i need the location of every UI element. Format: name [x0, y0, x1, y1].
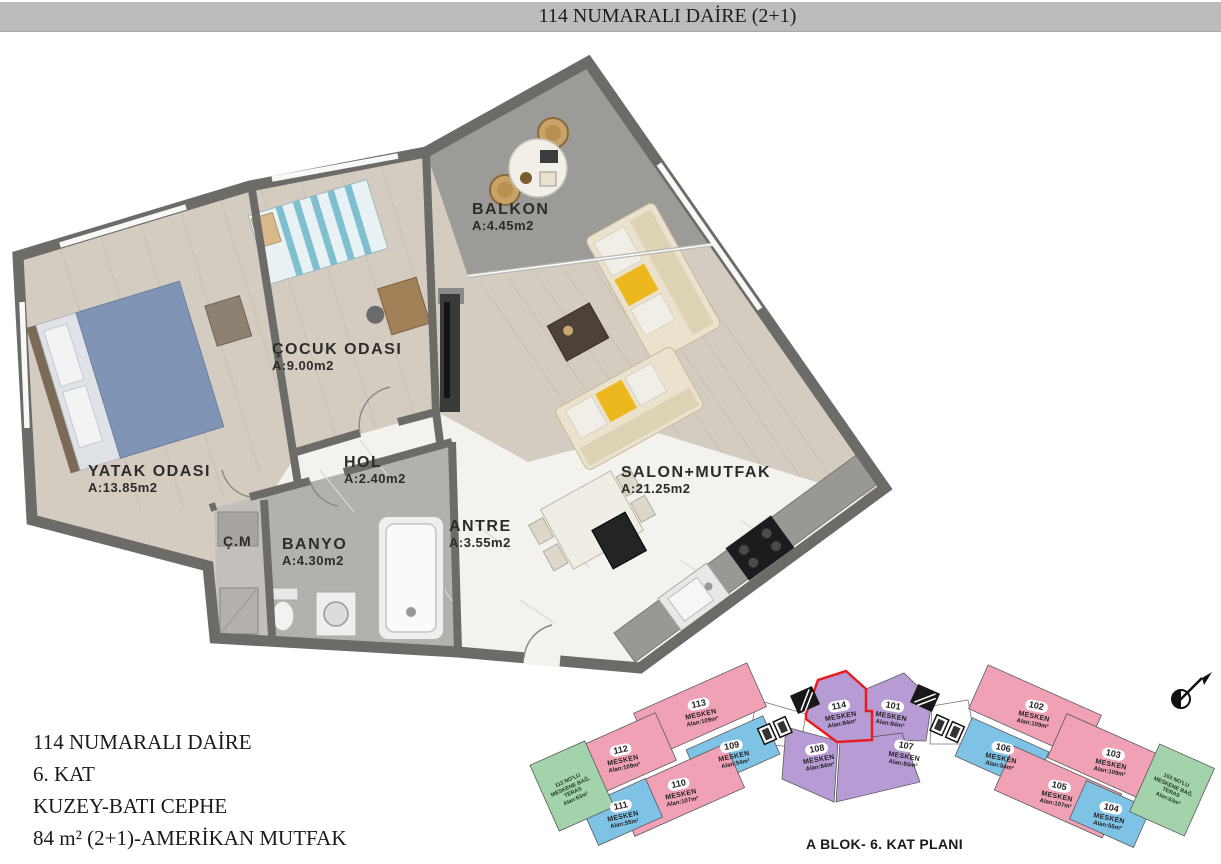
north-compass-icon [1172, 672, 1212, 708]
room-label-antre: ANTRE A:3.55m2 [449, 519, 512, 549]
entry-door-gap [524, 658, 560, 661]
keyplan-label-111: 111 MESKEN Alan:55m² [603, 793, 641, 832]
keyplan-label-103: 103 MESKEN Alan:109m² [1093, 740, 1131, 779]
keyplan-label-114: 114 MESKEN Alan:84m² [822, 693, 859, 731]
keyplan-caption: A BLOK- 6. KAT PLANI [806, 836, 963, 852]
keyplan-label-107: 107 MESKEN Alan:84m² [887, 733, 924, 771]
info-line-size: 84 m² (2+1)-AMERİKAN MUTFAK [33, 822, 346, 854]
page: 114 NUMARALI DAİRE (2+1) [0, 0, 1221, 864]
keyplan-label-101: 101 MESKEN Alan:84m² [874, 693, 911, 731]
room-label-salon-mutfak: SALON+MUTFAK A:21.25m2 [621, 465, 771, 495]
keyplan-label-105: 105 MESKEN Alan:107m² [1039, 772, 1077, 811]
balcony-table [509, 139, 567, 197]
room-label-yatak-odasi: YATAK ODASI A:13.85m2 [88, 464, 211, 494]
info-line-floor: 6. KAT [33, 758, 346, 790]
keyplan-label-104: 104 MESKEN Alan:55m² [1091, 795, 1129, 834]
washing-machine [316, 592, 356, 636]
room-label-hol: HOL A:2.40m2 [344, 455, 406, 485]
keyplan-label-109: 109 MESKEN Alan:54m² [714, 733, 752, 772]
keyplan-label-112: 112 MESKEN Alan:109m² [603, 736, 641, 775]
keyplan-label-110: 110 MESKEN Alan:107m² [661, 770, 699, 809]
info-line-facade: KUZEY-BATI CEPHE [33, 790, 346, 822]
bathtub [378, 516, 444, 640]
keyplan-label-108: 108 MESKEN Alan:84m² [800, 736, 837, 774]
keyplan-label-106: 106 MESKEN Alan:54m² [983, 735, 1021, 774]
room-label-banyo: BANYO A:4.30m2 [282, 537, 347, 567]
room-label-balkon: BALKON A:4.45m2 [472, 202, 549, 232]
room-label-cm: Ç.M [223, 534, 252, 549]
info-line-unit: 114 NUMARALI DAİRE [33, 726, 346, 758]
keyplan-label-102: 102 MESKEN Alan:109m² [1016, 692, 1054, 731]
room-label-cocuk-odasi: ÇOCUK ODASI A:9.00m2 [272, 342, 402, 372]
info-block: 114 NUMARALI DAİRE 6. KAT KUZEY-BATI CEP… [33, 726, 346, 854]
keyplan-label-113: 113 MESKEN Alan:109m² [681, 690, 719, 729]
